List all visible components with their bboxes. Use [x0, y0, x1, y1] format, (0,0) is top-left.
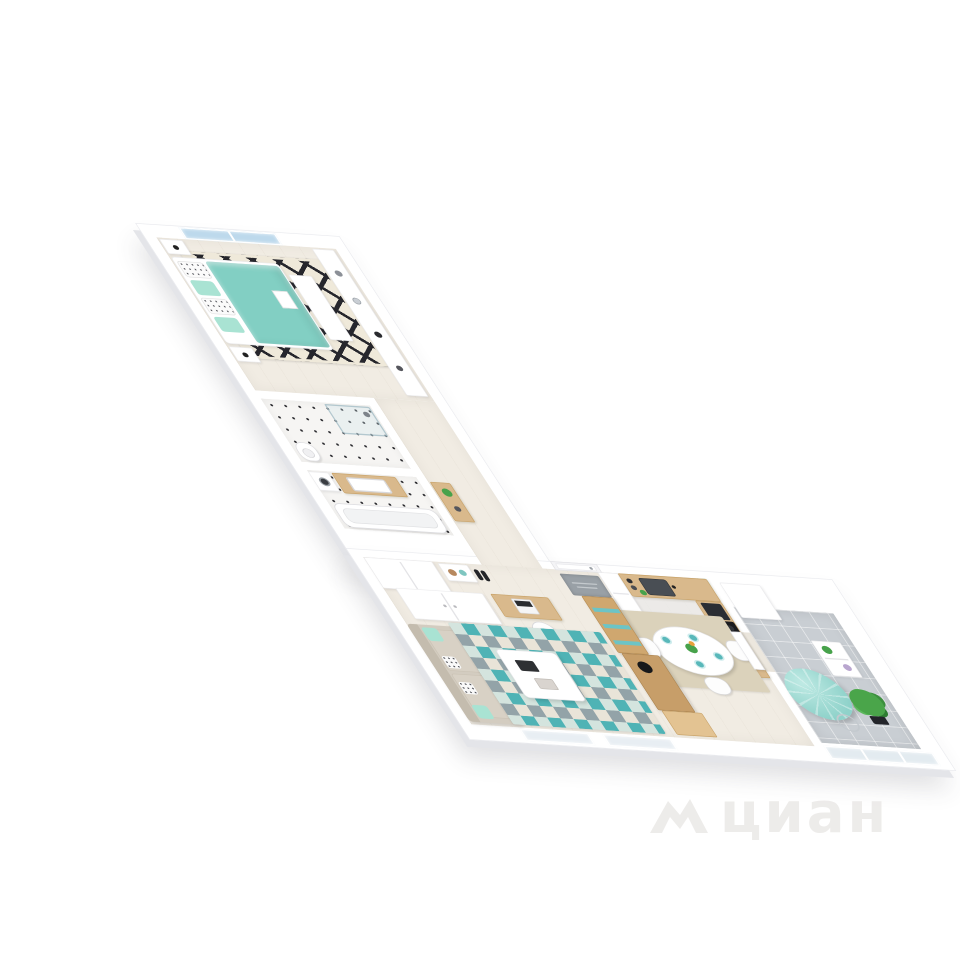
- plate-teal: [658, 635, 674, 644]
- etagere-shelf-line: [825, 658, 849, 661]
- decor-mirror: [351, 297, 363, 304]
- plant-pot: [869, 716, 890, 725]
- plate-teal: [692, 660, 708, 669]
- decor-box: [373, 331, 384, 338]
- shelf-teal-accent: [592, 608, 621, 614]
- wall-lamp-icon: [172, 245, 181, 250]
- bag-icon: [446, 569, 458, 576]
- window-mullion: [227, 232, 236, 242]
- laptop-screen: [514, 601, 533, 607]
- doormat-text-line: [572, 582, 598, 585]
- shelf-teal-accent: [602, 624, 631, 630]
- book: [534, 678, 560, 690]
- decor-dot: [453, 506, 463, 512]
- railing-post: [897, 752, 906, 763]
- plate-teal: [711, 652, 727, 661]
- vanity-sink: [345, 477, 393, 494]
- bathtub-basin: [340, 508, 440, 529]
- cian-watermark: циан: [648, 786, 889, 842]
- laptop: [510, 598, 540, 614]
- wardrobe-handle-icon: [443, 604, 448, 607]
- wardrobe-handle-icon: [453, 605, 458, 608]
- cian-watermark-text: циан: [720, 786, 889, 842]
- jar-icon: [625, 578, 634, 583]
- bag-icon: [457, 570, 468, 577]
- railing-post: [860, 749, 869, 760]
- toilet-seat: [300, 448, 317, 458]
- jar-icon: [630, 585, 639, 590]
- plant-icon: [440, 488, 455, 497]
- shower-head-icon: [362, 412, 372, 418]
- washer-door-icon: [317, 477, 333, 486]
- wardrobe-door-split: [399, 562, 418, 589]
- black-bowl: [635, 661, 656, 673]
- book: [514, 660, 540, 672]
- wall-lamp-icon: [241, 352, 250, 357]
- apartment-3d-floorplan: [112, 215, 960, 787]
- plant-icon: [820, 646, 835, 655]
- fridge-door-split: [613, 593, 629, 595]
- shelf-teal-accent: [613, 640, 642, 646]
- lavender-icon: [841, 664, 853, 671]
- doormat-text-line: [577, 586, 598, 589]
- cian-roof-icon: [648, 789, 710, 839]
- floorplan-screenshot: циан: [0, 0, 960, 960]
- decor-vase: [333, 270, 344, 277]
- decor-vase: [395, 365, 405, 371]
